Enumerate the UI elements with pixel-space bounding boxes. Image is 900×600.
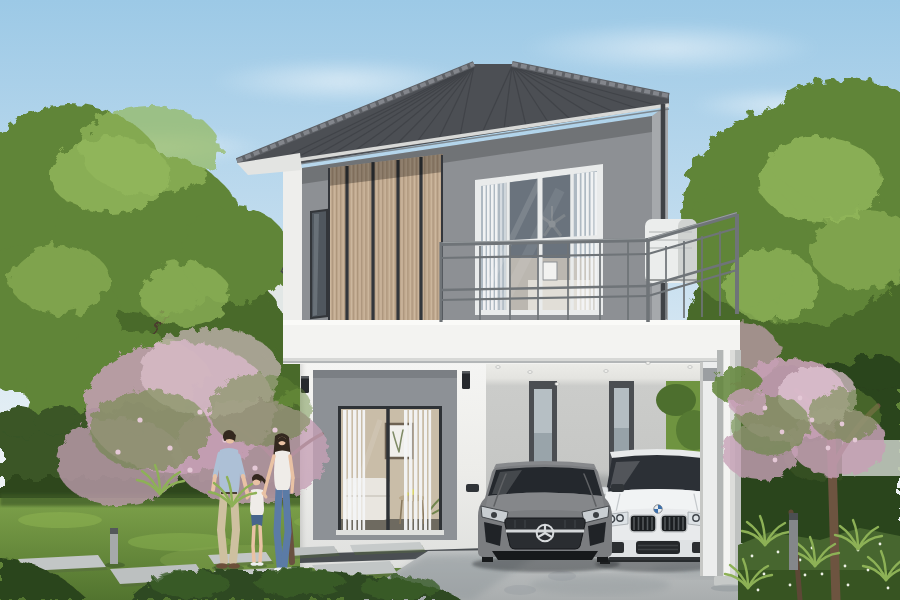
carport-downlights bbox=[496, 362, 692, 386]
flowering-tree-right bbox=[711, 358, 886, 480]
bollard-light-left bbox=[105, 528, 125, 568]
bollard-light-right bbox=[789, 513, 798, 570]
foreground bbox=[0, 0, 900, 600]
architectural-rendering bbox=[0, 0, 900, 600]
